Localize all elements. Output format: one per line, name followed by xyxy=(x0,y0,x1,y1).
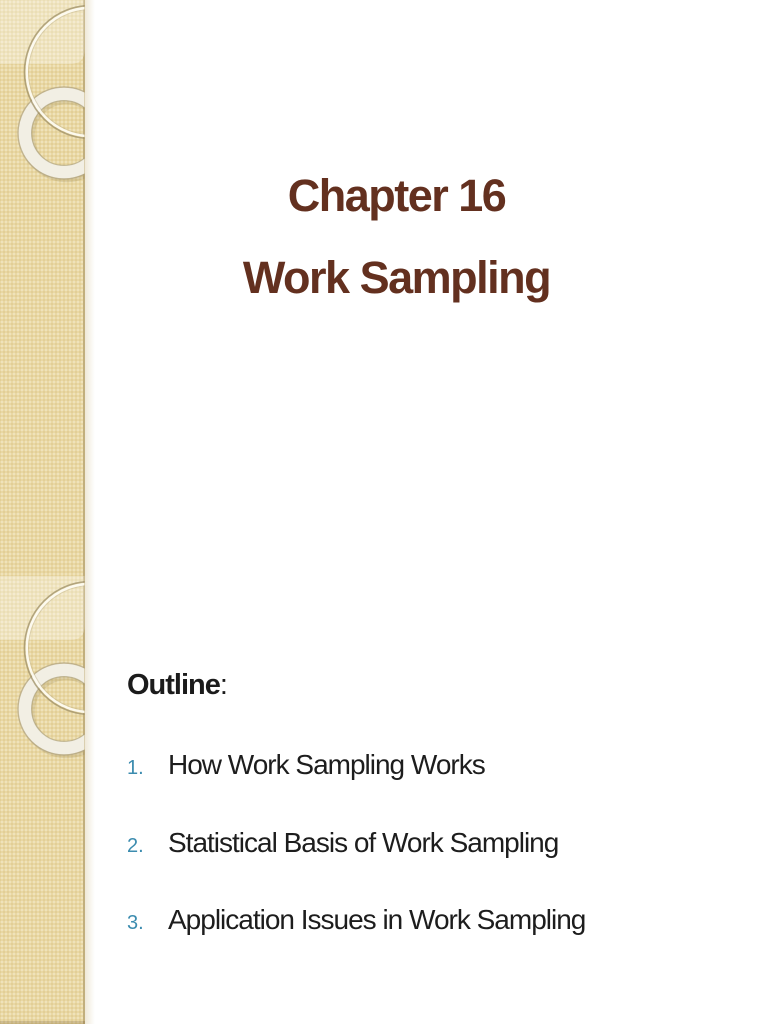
sidebar-ornament xyxy=(0,576,96,1024)
outline-item-2: 2.Statistical Basis of Work Sampling xyxy=(127,829,558,857)
slide-2: Outline: 1.How Work Sampling Works 2.Sta… xyxy=(0,576,768,1024)
outline-item-2-text: Statistical Basis of Work Sampling xyxy=(168,827,558,858)
outline-item-1: 1.How Work Sampling Works xyxy=(127,751,485,779)
outline-heading-word: Outline xyxy=(127,669,220,701)
sidebar-ornament xyxy=(0,0,96,576)
sidebar-slide-2 xyxy=(0,576,96,1024)
outline-item-3: 3.Application Issues in Work Sampling xyxy=(127,906,585,934)
sidebar-slide-1 xyxy=(0,0,96,576)
outline-item-2-number: 2. xyxy=(127,836,168,856)
outline-item-3-text: Application Issues in Work Sampling xyxy=(168,904,585,935)
outline-item-3-number: 3. xyxy=(127,913,168,933)
slide-title-line-1: Chapter 16 xyxy=(96,173,697,218)
slide-1: Chapter 16 Work Sampling xyxy=(0,0,768,576)
slide-title-line-2: Work Sampling xyxy=(96,255,697,300)
outline-heading: Outline: xyxy=(127,671,227,700)
outline-item-1-number: 1. xyxy=(127,758,168,778)
page: { "theme": { "sidebar_color": "#e9d8a3",… xyxy=(0,0,768,1024)
outline-heading-colon: : xyxy=(220,669,227,701)
outline-item-1-text: How Work Sampling Works xyxy=(168,749,485,780)
